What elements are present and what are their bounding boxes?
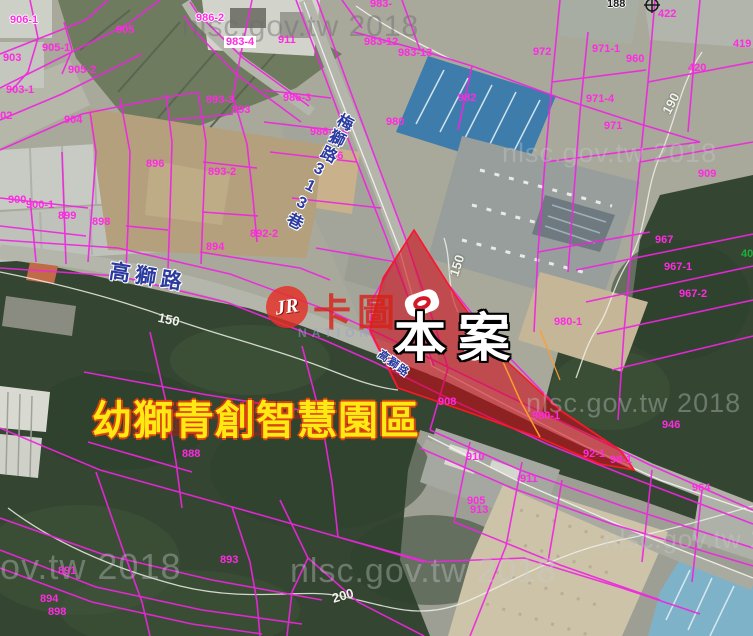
parcel-number-label: 892-2 (250, 228, 278, 240)
parcel-number-label: 971-1 (592, 43, 620, 55)
parcel-number-label: 905-2 (68, 64, 96, 76)
parcel-number-label: 893-2 (208, 166, 236, 178)
subject-site-label: 本案 (394, 296, 522, 371)
parcel-number-label: 971-4 (586, 93, 614, 105)
nlsc-watermark: nlsc.gov.tw 2018 (0, 546, 181, 588)
parcel-number-label: 896 (146, 158, 164, 170)
parcel-number-label: 986-3 (283, 92, 311, 104)
parcel-number-label: 967-2 (679, 288, 707, 300)
contour-elevation-label: 190 (659, 90, 682, 116)
parcel-number-label: 960 (626, 53, 644, 65)
parcel-number-label: 893 (232, 104, 250, 116)
parcel-number-label: 893-3 (206, 94, 234, 106)
parcel-number-label: 982 (458, 92, 476, 104)
top-edge-label: 188 (607, 0, 625, 10)
parcel-number-label: 913 (470, 504, 488, 516)
parcel-number-label: 905-1 (42, 42, 70, 54)
parcel-number-label: 898 (92, 216, 110, 228)
logo-watermark-subtext: NATION (298, 326, 373, 340)
road-name-label: 高獅路 (107, 255, 189, 297)
parcel-number-label: 40 (741, 248, 753, 260)
parcel-number-label: 899 (58, 210, 76, 222)
parcel-number-label: 986-2 (196, 12, 224, 24)
parcel-number-label: 964 (692, 482, 710, 494)
parcel-number-label: 980-1 (554, 316, 582, 328)
parcel-number-label: 419 (733, 38, 751, 50)
parcel-number-label: 888 (182, 448, 200, 460)
map-label-layer: JR 卡圖 NATION 卡圖卡圖卡圖 幼獅青創智慧園區 本案 188 nlsc… (0, 0, 753, 636)
parcel-number-label: 980 (386, 116, 404, 128)
parcel-number-label: 980-1 (532, 410, 560, 422)
parcel-number-label: 905 (116, 24, 134, 36)
parcel-number-label: 906-1 (10, 14, 38, 26)
parcel-number-label: 946 (662, 419, 680, 431)
parcel-number-label: 904 (64, 114, 82, 126)
parcel-number-label: 900 (8, 194, 26, 206)
parcel-number-label: 909 (698, 168, 716, 180)
nlsc-watermark: nlsc.gov.tw 2018 (604, 524, 753, 555)
parcel-number-label: 908 (438, 396, 456, 408)
nlsc-watermark: nlsc.gov.tw 2018 (502, 138, 717, 169)
parcel-number-label: 983-13 (398, 47, 432, 59)
parcel-number-label: 98-1 (610, 454, 632, 466)
parcel-number-label: 900-1 (26, 199, 54, 211)
parcel-number-label: 92-1 (583, 448, 605, 460)
jr-logo-icon: JR (263, 283, 310, 330)
map-canvas: JR 卡圖 NATION 卡圖卡圖卡圖 幼獅青創智慧園區 本案 188 nlsc… (0, 0, 753, 636)
jr-logo-text: JR (274, 294, 300, 320)
parcel-number-label: 911 (278, 34, 296, 46)
parcel-number-label: 420 (688, 62, 706, 74)
parcel-number-label: 983-12 (364, 36, 398, 48)
parcel-number-label: 911 (520, 473, 538, 485)
parcel-number-label: 891 (58, 565, 76, 577)
parcel-number-label: 898 (48, 606, 66, 618)
parcel-number-label: 422 (658, 8, 676, 20)
parcel-number-label: 983- (370, 0, 392, 10)
parcel-number-label: 971 (604, 120, 622, 132)
nlsc-watermark: nlsc.gov.tw 2018 (290, 552, 557, 591)
parcel-number-label: 903-1 (6, 84, 34, 96)
parcel-number-label: 967-1 (664, 261, 692, 273)
parcel-number-label: 967 (655, 234, 673, 246)
parcel-number-label: 903 (3, 52, 21, 64)
parcel-number-label: 972 (533, 46, 551, 58)
contour-elevation-label: 150 (446, 253, 467, 278)
parcel-number-label: 893 (220, 554, 238, 566)
parcel-number-label: 894 (206, 241, 224, 253)
parcel-number-label: 910 (466, 451, 484, 463)
parcel-number-label: 983-4 (224, 36, 256, 48)
parcel-number-label: 894 (40, 593, 58, 605)
contour-elevation-label: 150 (157, 310, 181, 329)
parcel-number-label: 902 (0, 110, 12, 122)
park-name-label: 幼獅青創智慧園區 (92, 388, 420, 446)
